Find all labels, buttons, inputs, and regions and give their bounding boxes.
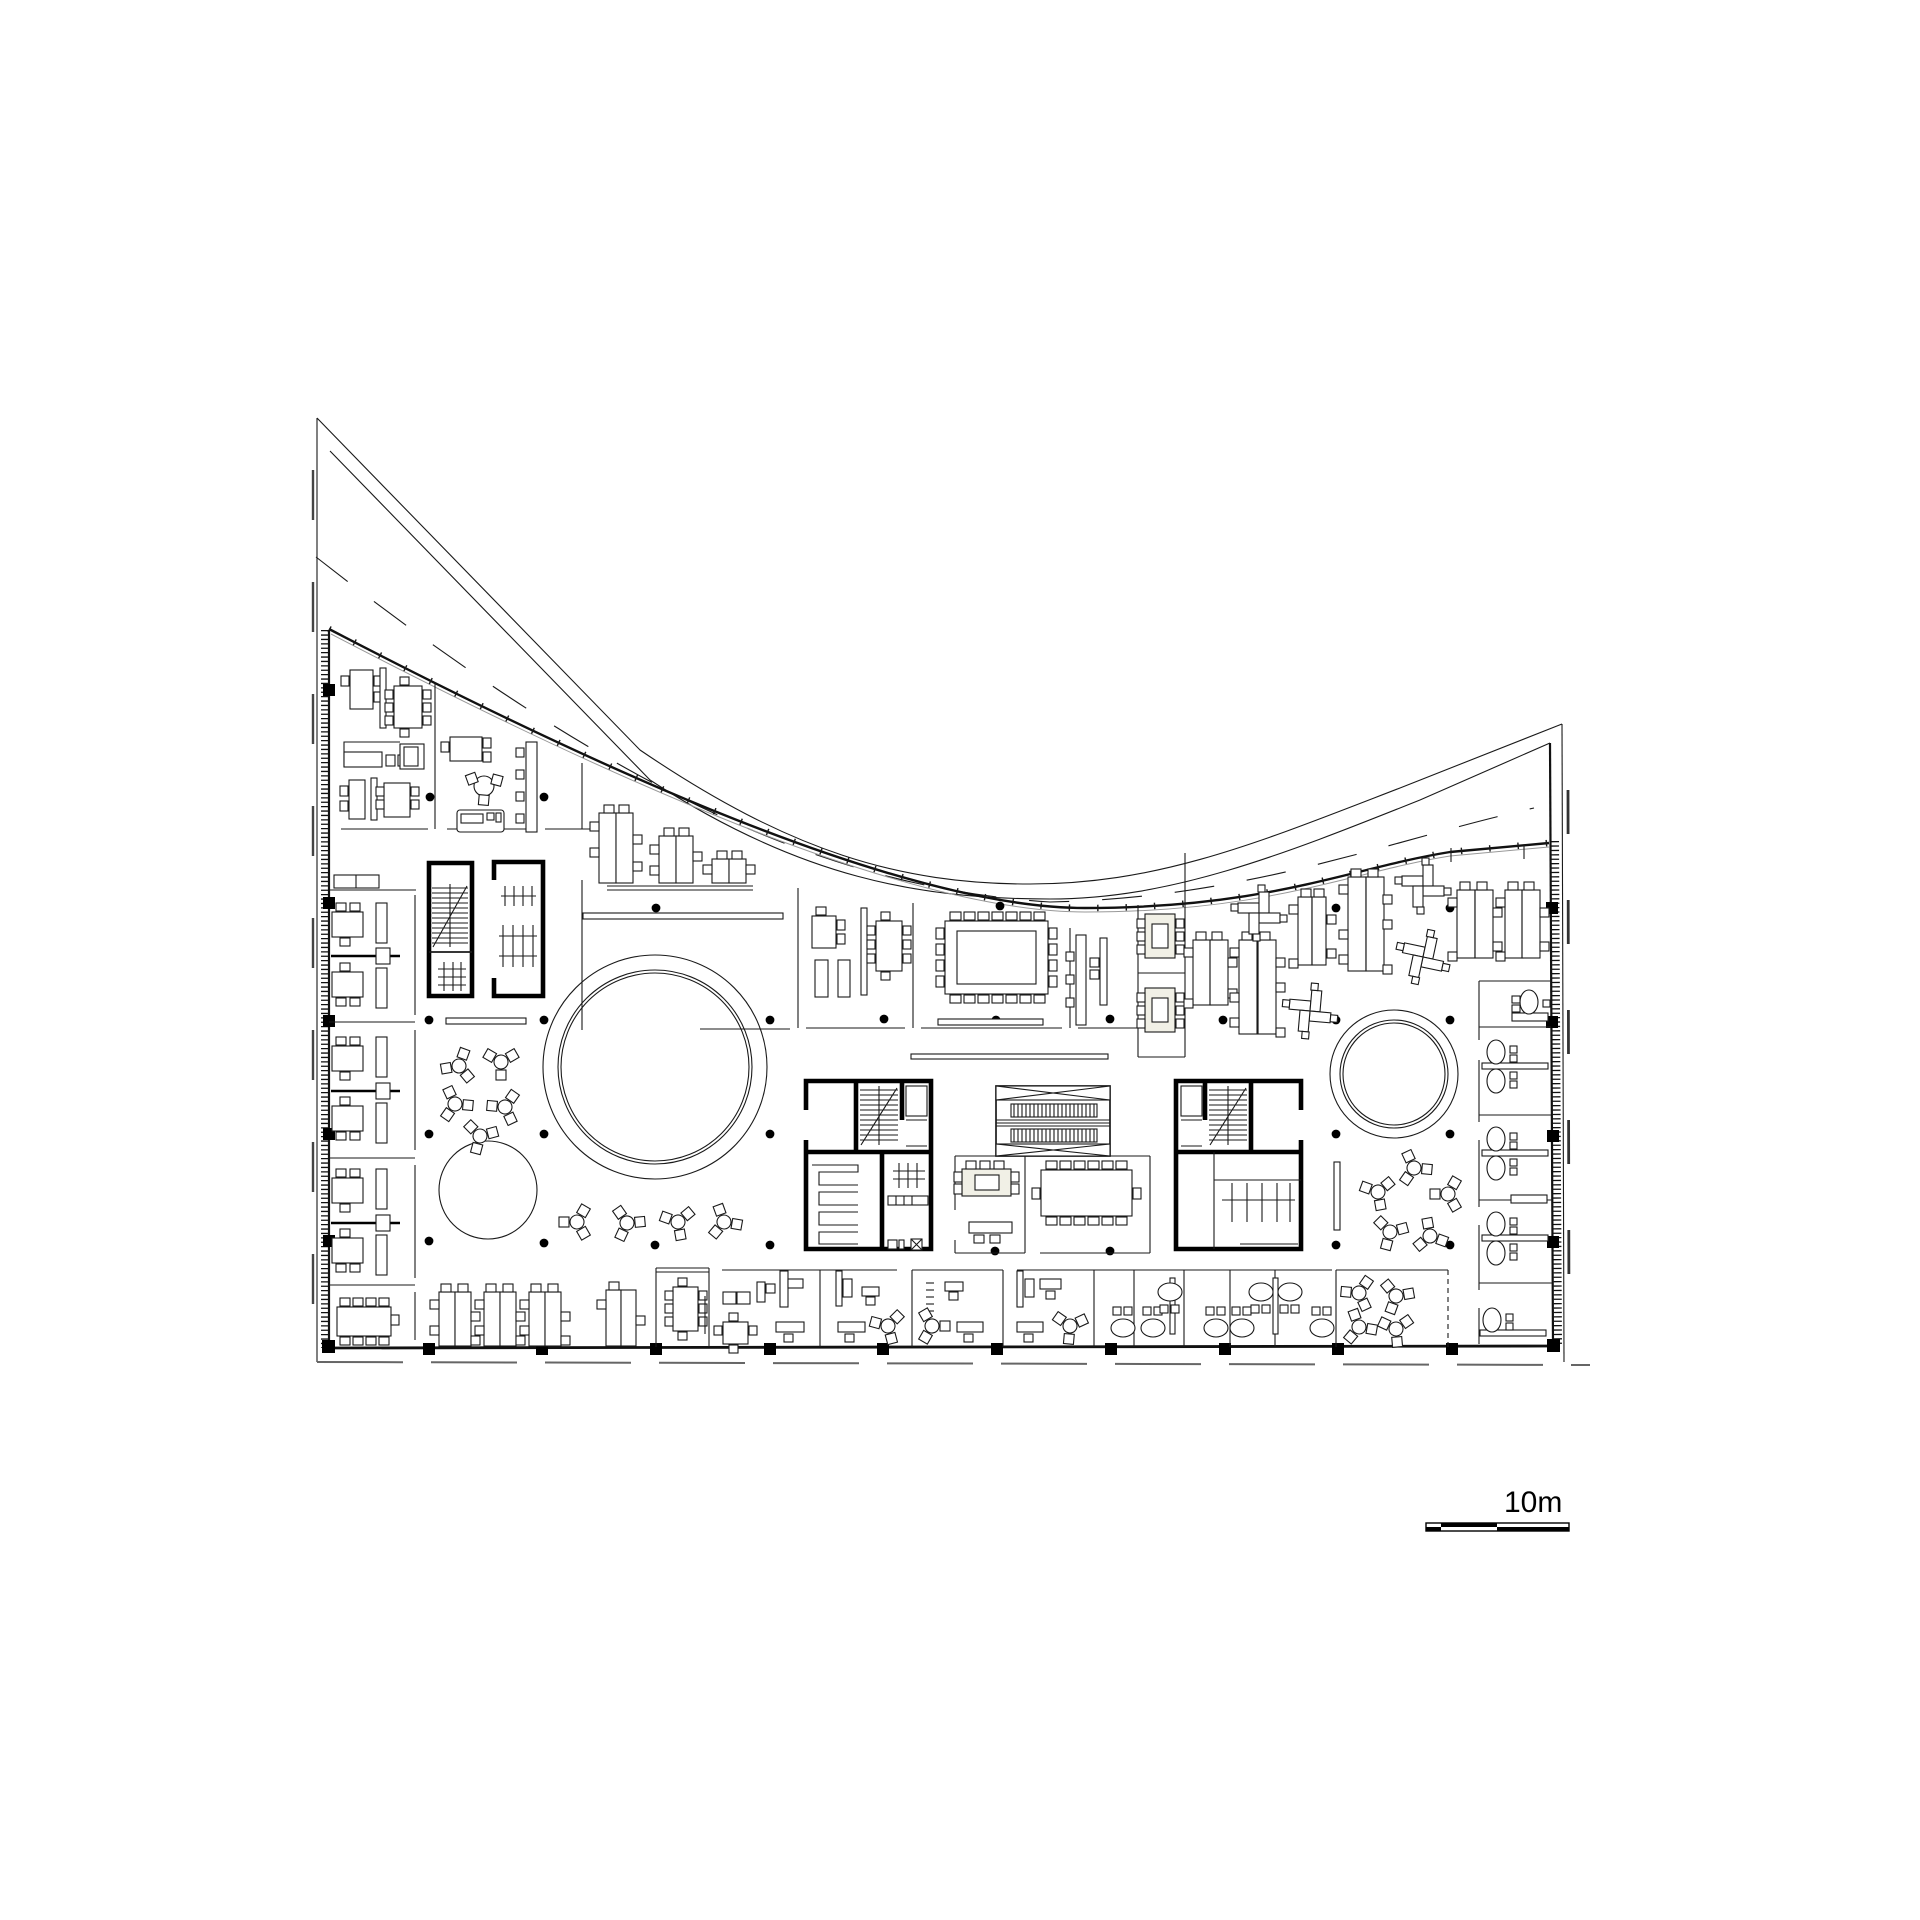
svg-text:10m: 10m — [1504, 1486, 1562, 1519]
